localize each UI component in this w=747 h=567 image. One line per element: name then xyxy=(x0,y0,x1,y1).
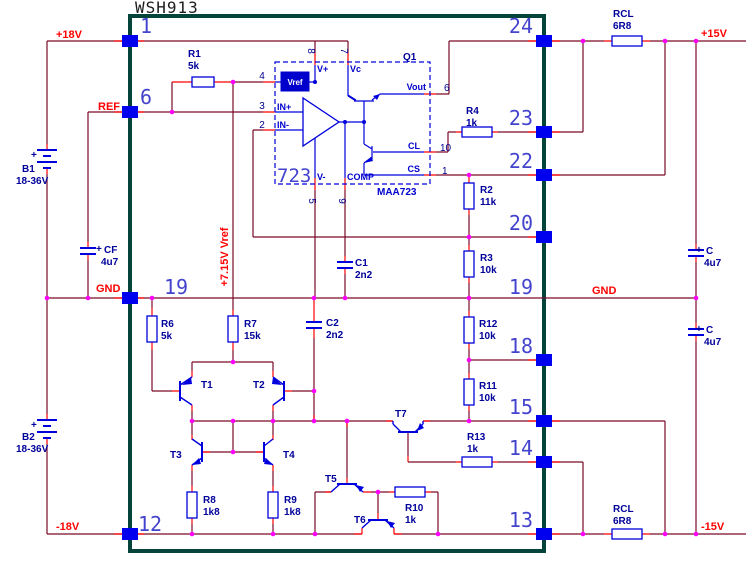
label-c-bottom: C xyxy=(706,325,713,336)
label-c-top: C xyxy=(706,246,713,257)
pad-23 xyxy=(536,126,552,138)
transistor-T5: T5 xyxy=(325,474,364,492)
transistor-T3: T3 xyxy=(170,439,202,465)
capacitor-C1: C1 2n2 xyxy=(337,258,373,281)
pad-24 xyxy=(536,35,552,47)
label-vc: Vc xyxy=(350,64,361,74)
pin-13: 13 xyxy=(509,508,533,532)
wires-layer xyxy=(47,41,746,534)
pin-12: 12 xyxy=(138,512,162,536)
transistor-T7: T7 xyxy=(393,409,424,432)
icpin-10: 10 xyxy=(440,143,452,154)
resistor-RCL-bottom: RCL 6R8 xyxy=(612,504,642,539)
label-comp: COMP xyxy=(347,172,374,182)
resistor-R6: R6 5k xyxy=(147,316,174,342)
resistor-R2: R2 11k xyxy=(464,183,497,209)
label-cf: CF xyxy=(104,245,117,256)
capacitor-CF: + CF 4u7 xyxy=(80,244,119,268)
label-r7: R7 xyxy=(244,319,257,330)
resistor-R4: R4 1k xyxy=(462,106,492,137)
resistor-R13: R13 1k xyxy=(462,432,492,467)
pin-24: 24 xyxy=(509,14,533,38)
pin-1: 1 xyxy=(140,14,152,38)
b2-plus: + xyxy=(31,420,37,431)
resistor-R8: R8 1k8 xyxy=(187,492,220,518)
label-r12: R12 xyxy=(479,319,498,330)
b1-plus: + xyxy=(31,150,37,161)
pad-6 xyxy=(122,106,138,118)
t1-emitter-arrow-icon xyxy=(182,377,192,385)
icpin-4: 4 xyxy=(259,71,265,82)
value-r3: 10k xyxy=(480,265,497,276)
label-vout: Vout xyxy=(407,82,426,92)
capacitor-C-bottom: + C 4u7 xyxy=(688,324,722,348)
resistor-R11: R11 10k xyxy=(464,379,497,405)
resistor-R1: R1 5k xyxy=(188,49,214,87)
pin-18: 18 xyxy=(509,334,533,358)
label-b1: B1 xyxy=(22,164,35,175)
value-r6: 5k xyxy=(161,331,173,342)
label-r8: R8 xyxy=(203,495,216,506)
value-r1: 5k xyxy=(188,61,200,72)
batteries-layer: + B1 18-36V + B2 18-36V xyxy=(16,150,57,455)
label-r3: R3 xyxy=(480,253,493,264)
label-r11: R11 xyxy=(479,381,497,392)
value-r11: 10k xyxy=(479,393,496,404)
ctop-plus: + xyxy=(696,245,702,256)
label-t6: T6 xyxy=(354,515,366,526)
label-rcl-top: RCL xyxy=(613,9,634,20)
regulator-723: Vref V+ Vc Vout CL CS V- COMP IN+ IN- 72… xyxy=(259,48,451,204)
label-t3: T3 xyxy=(170,450,182,461)
label-c1: C1 xyxy=(355,258,368,269)
label-vminus: V- xyxy=(317,172,326,182)
icpin-6: 6 xyxy=(444,83,450,94)
value-r13: 1k xyxy=(467,444,479,455)
resistor-R7: R7 15k xyxy=(228,316,261,342)
opamp-triangle-icon xyxy=(303,98,339,146)
transistor-T4: T4 xyxy=(264,439,295,465)
battery-B1: + B1 18-36V xyxy=(16,150,57,187)
net-vref-rail: +7.15V Vref xyxy=(219,227,231,286)
label-r4: R4 xyxy=(466,106,479,117)
pin-19-left: 19 xyxy=(164,275,188,299)
t2-emitter-arrow-icon xyxy=(272,377,282,385)
label-t5: T5 xyxy=(325,474,337,485)
value-rcl-bottom: 6R8 xyxy=(613,516,632,527)
pin-6: 6 xyxy=(140,85,152,109)
transistor-T6: T6 xyxy=(354,515,395,528)
transistor-T1: T1 xyxy=(180,377,213,405)
icpin-8: 8 xyxy=(305,48,316,54)
label-maa723: MAA723 xyxy=(377,187,417,198)
icpin-5: 5 xyxy=(306,198,317,204)
pad-1 xyxy=(122,35,138,47)
label-t2: T2 xyxy=(253,380,265,391)
pin-23: 23 xyxy=(509,106,533,130)
value-c-top: 4u7 xyxy=(704,258,722,269)
value-r4: 1k xyxy=(466,118,478,129)
pad-12 xyxy=(122,528,138,540)
net-plus18v: +18V xyxy=(56,29,83,41)
value-r10: 1k xyxy=(405,515,417,526)
label-723: 723 xyxy=(277,165,311,187)
cf-plus: + xyxy=(96,244,102,255)
resistor-RCL-top: RCL 6R8 xyxy=(612,9,642,46)
label-r2: R2 xyxy=(480,185,493,196)
label-q1: Q1 xyxy=(403,52,417,63)
value-r7: 15k xyxy=(244,331,261,342)
pad-18 xyxy=(536,354,552,366)
label-cl: CL xyxy=(408,141,420,151)
net-labels: +18V REF GND -18V +15V -15V GND +7.15V V… xyxy=(56,28,728,533)
pad-13 xyxy=(536,528,552,540)
label-rcl-bottom: RCL xyxy=(613,504,634,515)
pad-15 xyxy=(536,415,552,427)
icpin-7: 7 xyxy=(338,48,349,54)
label-cs: CS xyxy=(407,164,420,174)
label-t1: T1 xyxy=(201,380,213,391)
transistor-T2: T2 xyxy=(253,377,284,405)
icpin-1: 1 xyxy=(442,166,448,177)
pin-20: 20 xyxy=(509,211,533,235)
icpin-2: 2 xyxy=(259,120,265,131)
net-plus15v: +15V xyxy=(701,28,728,40)
schematic-svg: WSH913 Vref V+ Vc Vout CL CS V- COMP IN+… xyxy=(0,0,747,567)
pin-15: 15 xyxy=(509,395,533,419)
pin-14: 14 xyxy=(509,436,533,460)
pad-14 xyxy=(536,456,552,468)
battery-B2: + B2 18-36V xyxy=(16,420,57,455)
net-minus15v: -15V xyxy=(701,521,725,533)
resistor-R9: R9 1k8 xyxy=(268,492,301,518)
icpin-3: 3 xyxy=(259,101,265,112)
label-vplus: V+ xyxy=(317,64,328,74)
pad-19 xyxy=(122,292,138,304)
pin-22: 22 xyxy=(509,149,533,173)
label-r9: R9 xyxy=(284,495,297,506)
label-c2: C2 xyxy=(326,318,339,329)
value-r2: 11k xyxy=(480,197,497,208)
label-in-plus: IN+ xyxy=(277,102,291,112)
label-b2: B2 xyxy=(22,432,35,443)
capacitor-C-top: + C 4u7 xyxy=(688,245,722,269)
label-r1: R1 xyxy=(188,49,201,60)
label-in-minus: IN- xyxy=(277,120,289,130)
pad-22 xyxy=(536,169,552,181)
value-b2: 18-36V xyxy=(16,444,49,455)
value-rcl-top: 6R8 xyxy=(613,21,632,32)
label-t4: T4 xyxy=(283,450,295,461)
capacitor-C2: C2 2n2 xyxy=(306,318,344,341)
resistor-R3: R3 10k xyxy=(464,251,497,277)
value-r12: 10k xyxy=(479,331,496,342)
value-cf: 4u7 xyxy=(101,257,119,268)
net-gnd-right: GND xyxy=(592,285,617,297)
value-r8: 1k8 xyxy=(203,507,220,518)
resistor-R10: R10 1k xyxy=(395,487,425,526)
resistor-R12: R12 10k xyxy=(464,317,498,343)
value-c-bottom: 4u7 xyxy=(704,337,722,348)
net-ref: REF xyxy=(98,101,120,113)
pad-20 xyxy=(536,231,552,243)
icpin-9: 9 xyxy=(336,198,347,204)
label-r10: R10 xyxy=(405,503,424,514)
label-vref: Vref xyxy=(287,78,302,87)
net-minus18v: -18V xyxy=(56,521,80,533)
label-r13: R13 xyxy=(467,432,486,443)
net-gnd-left: GND xyxy=(96,283,121,295)
schematic-canvas: WSH913 Vref V+ Vc Vout CL CS V- COMP IN+… xyxy=(0,0,747,567)
cbot-plus: + xyxy=(696,324,702,335)
value-c1: 2n2 xyxy=(355,270,373,281)
value-b1: 18-36V xyxy=(16,176,49,187)
label-t7: T7 xyxy=(395,409,407,420)
value-r9: 1k8 xyxy=(284,507,301,518)
pin-19-right: 19 xyxy=(509,275,533,299)
value-c2: 2n2 xyxy=(326,330,344,341)
label-r6: R6 xyxy=(161,319,174,330)
